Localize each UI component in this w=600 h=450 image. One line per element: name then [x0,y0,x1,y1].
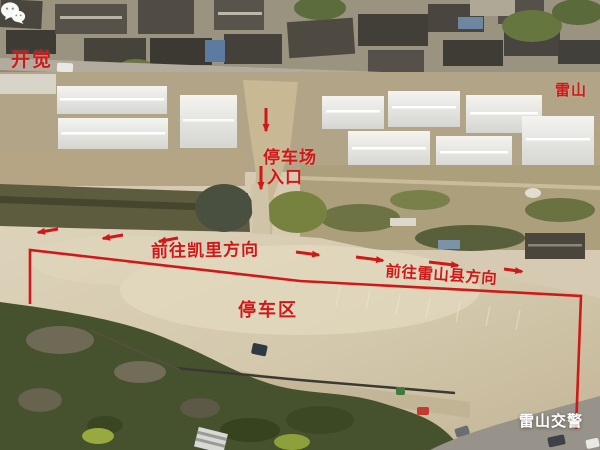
parking-zone-label: 停车区 [238,301,298,320]
village-label-leishan: 雷山 [555,83,587,99]
kaili-arrow-2 [103,235,123,239]
parking-entrance-label-line1: 停车场 [263,149,317,167]
wechat-icon [0,0,26,26]
route-annotation-overlay [0,0,600,450]
parking-entrance-label-line2: 入口 [267,169,303,187]
leishan-arrow-2 [356,257,383,261]
kaili-arrow-1 [38,229,58,233]
direction-label-kaili: 前往凯里方向 [151,241,259,261]
leishan-arrow-1 [296,252,319,255]
village-label-kaijue: 开觉 [11,51,53,71]
watermark-leishan-traffic-police: 雷山交警 [519,410,583,431]
parking-area-boundary-line [30,250,581,429]
leishan-arrow-3 [429,262,458,266]
leishan-arrow-4 [504,269,522,272]
aerial-parking-guide-photo: 开觉 雷山 停车场 入口 前往凯里方向 前往雷山县方向 停车区 雷山交警 [0,0,600,450]
